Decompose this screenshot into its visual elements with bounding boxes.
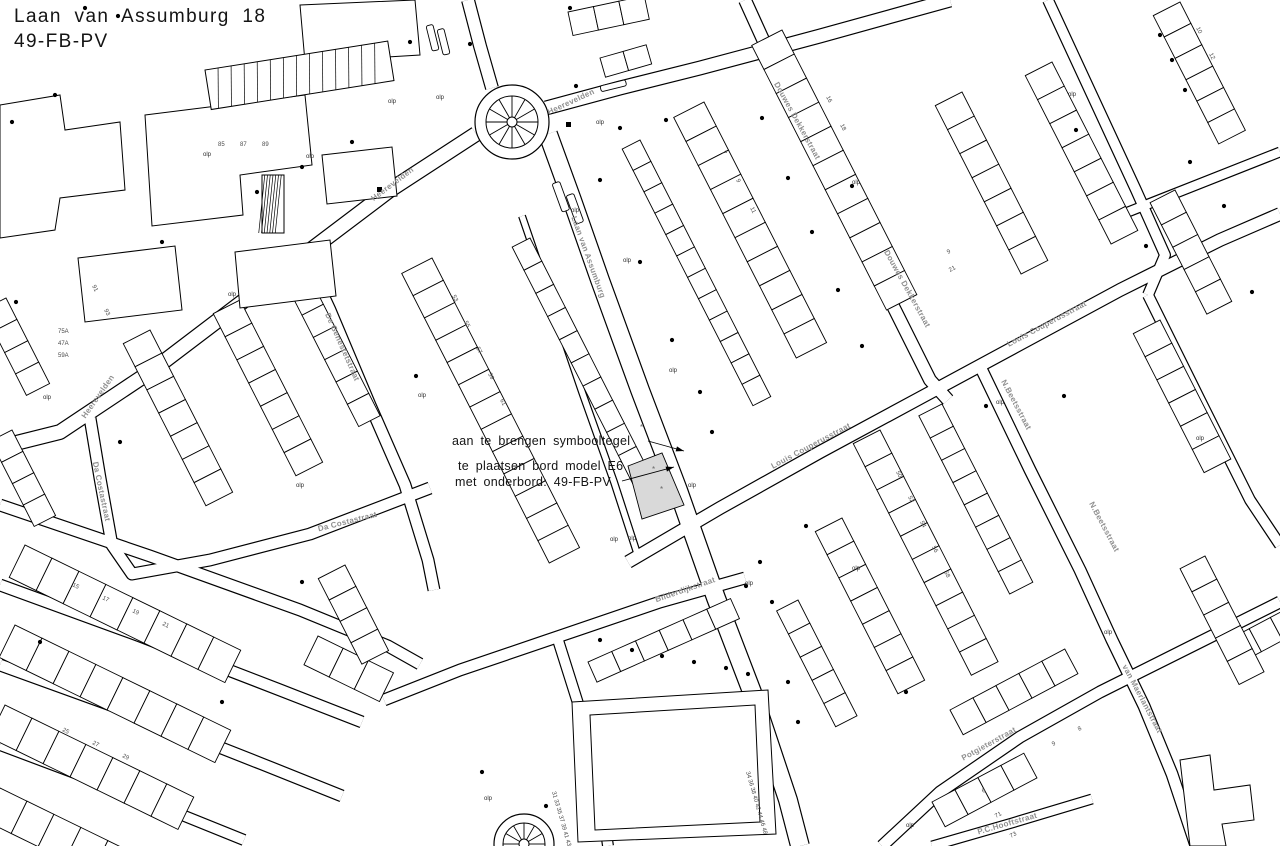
tree-dot (664, 118, 668, 122)
tree-dot (350, 140, 354, 144)
house-row (291, 282, 380, 427)
house (619, 0, 649, 25)
house-number: 31 33 35 37 39 41 43 45 47 49 (550, 791, 578, 846)
house-number: 9 (946, 249, 952, 256)
tree-dot (53, 93, 57, 97)
tree-dot (804, 524, 808, 528)
lamppost-symbol: olp (852, 180, 861, 186)
lamppost-symbol: olp (745, 581, 754, 587)
tree-dot (984, 404, 988, 408)
tree-dot (598, 638, 602, 642)
lamppost-symbol: olp (996, 400, 1005, 406)
hatched-building (259, 175, 284, 233)
house-row (588, 599, 739, 683)
lamppost-symbol: olp (1068, 92, 1077, 98)
lamppost-symbol: olp (852, 566, 861, 572)
annotation-onderbord: met onderbord: 49-FB-PV (455, 475, 611, 489)
house-number: 9 (1051, 741, 1057, 748)
lamppost-symbol: olp (596, 120, 605, 126)
lamppost-symbol: olp (436, 95, 445, 101)
street-name-label: N.Beetsstraat (1087, 500, 1121, 553)
apartment-block (322, 147, 397, 204)
tree-dot (1144, 244, 1148, 248)
drawing-title: Laan van Assumburg 18 49-FB-PV (14, 4, 266, 54)
lamppost-symbol: olp (628, 536, 637, 542)
tree-symbol: * (660, 485, 663, 494)
house-number: 75A (58, 329, 69, 335)
house-number: 21 (948, 265, 957, 274)
tree-dot (710, 430, 714, 434)
house-number: 8 (1077, 726, 1083, 733)
lamppost-symbol: olp (296, 483, 305, 489)
drawing-title-code: 49-FB-PV (14, 29, 266, 54)
lamppost-symbol: olp (228, 292, 237, 298)
tree-dot (670, 338, 674, 342)
house-row (1133, 320, 1231, 473)
house-number: 87 (240, 142, 247, 148)
tree-dot (1250, 290, 1254, 294)
tree-dot (220, 700, 224, 704)
house-number: 71 (994, 811, 1003, 820)
tree-dot (796, 720, 800, 724)
house-row (568, 0, 649, 35)
house-number: 18 (838, 123, 847, 132)
tree-dot (660, 654, 664, 658)
drawing-title-address: Laan van Assumburg 18 (14, 4, 266, 29)
apartment-block (145, 95, 312, 226)
house-row (213, 300, 322, 476)
street-surface-right-street (1148, 295, 1280, 545)
tree-dot (480, 770, 484, 774)
tree-dot (786, 176, 790, 180)
tree-dot (638, 260, 642, 264)
leader-arrowhead-0 (676, 446, 685, 453)
annotation-symbooltegel: aan te brengen symbooltegel (452, 434, 630, 448)
lamppost-symbol: olp (688, 483, 697, 489)
tree-dot (468, 42, 472, 46)
tree-dot (1188, 160, 1192, 164)
lamppost-symbol: olp (571, 208, 580, 214)
tree-dot (746, 672, 750, 676)
roundabout-1 (494, 814, 554, 846)
tree-dot (760, 116, 764, 120)
traffic-island (426, 24, 439, 51)
marker-square (566, 122, 571, 127)
house-number: 73 (1009, 831, 1018, 840)
house (568, 7, 598, 36)
tree-dot (1183, 88, 1187, 92)
house-row (1153, 2, 1245, 144)
apartment-block (0, 95, 125, 238)
house (623, 45, 652, 71)
tree-dot (300, 165, 304, 169)
tree-dot (786, 680, 790, 684)
tree-dot (118, 440, 122, 444)
map-canvas: olpolpolpolpolpolpolpolpolpolpolpolpolpo… (0, 0, 1280, 846)
house (593, 1, 623, 30)
house-number: 47A (58, 341, 69, 347)
lamppost-symbol: olp (1196, 436, 1205, 442)
traffic-island-shape (437, 28, 450, 55)
lamppost-symbol: olp (610, 537, 619, 543)
tree-dot (770, 600, 774, 604)
tree-dot (160, 240, 164, 244)
lamppost-symbol: olp (669, 368, 678, 374)
house-number: 85 (218, 142, 225, 148)
tree-dot (1062, 394, 1066, 398)
house-number: 29 (121, 753, 130, 762)
lamppost-symbol: olp (306, 154, 315, 160)
tree-dot (408, 40, 412, 44)
annotation-bord-model: te plaatsen bord model E6 (458, 459, 623, 473)
tree-dot (692, 660, 696, 664)
tree-dot (810, 230, 814, 234)
house-row (0, 298, 50, 395)
tree-dot (598, 178, 602, 182)
tree-dot (904, 690, 908, 694)
school-building-inner (590, 705, 760, 830)
street-name-label: Louis Couperusstraat (1006, 299, 1089, 349)
tree-dot (698, 390, 702, 394)
tree-dot (568, 6, 572, 10)
roundabout-hub-circle (507, 117, 517, 127)
tree-dot (630, 648, 634, 652)
house-number: 59A (58, 353, 69, 359)
tree-dot (10, 120, 14, 124)
tree-dot (14, 300, 18, 304)
lamppost-symbol: olp (623, 258, 632, 264)
traffic-island (437, 28, 450, 55)
apartment-block (78, 246, 182, 322)
tree-dot (255, 190, 259, 194)
tree-dot (860, 344, 864, 348)
lamppost-symbol: olp (388, 99, 397, 105)
tree-dot (38, 640, 42, 644)
lamppost-symbol: olp (43, 395, 52, 401)
cross-building (1180, 755, 1254, 846)
tree-dot (836, 288, 840, 292)
tree-dot (618, 126, 622, 130)
tree-dot (414, 374, 418, 378)
tree-dot (758, 560, 762, 564)
traffic-island-shape (426, 24, 439, 51)
tree-dot (544, 804, 548, 808)
tree-dot (1158, 33, 1162, 37)
house-number: 89 (262, 142, 269, 148)
lamppost-symbol: olp (484, 796, 493, 802)
cadastral-map: olpolpolpolpolpolpolpolpolpolpolpolpolpo… (0, 0, 1280, 846)
house-row (777, 600, 857, 727)
tree-dot (574, 84, 578, 88)
tree-dot (1170, 58, 1174, 62)
lamppost-symbol: olp (906, 823, 915, 829)
tree-dot (300, 580, 304, 584)
house-row (600, 45, 652, 77)
house-number: 16 (824, 95, 833, 104)
tree-dot (724, 666, 728, 670)
lamppost-symbol: olp (1104, 630, 1113, 636)
roundabout-hub-circle (519, 839, 529, 846)
roundabout-0 (475, 85, 549, 159)
house-row (935, 92, 1048, 274)
tree-dot (1074, 128, 1078, 132)
tree-dot (1222, 204, 1226, 208)
house-row (622, 140, 771, 406)
lamppost-symbol: olp (418, 393, 427, 399)
apartment-block (235, 240, 336, 308)
tree-symbol: * (640, 423, 643, 432)
lamppost-symbol: olp (203, 152, 212, 158)
